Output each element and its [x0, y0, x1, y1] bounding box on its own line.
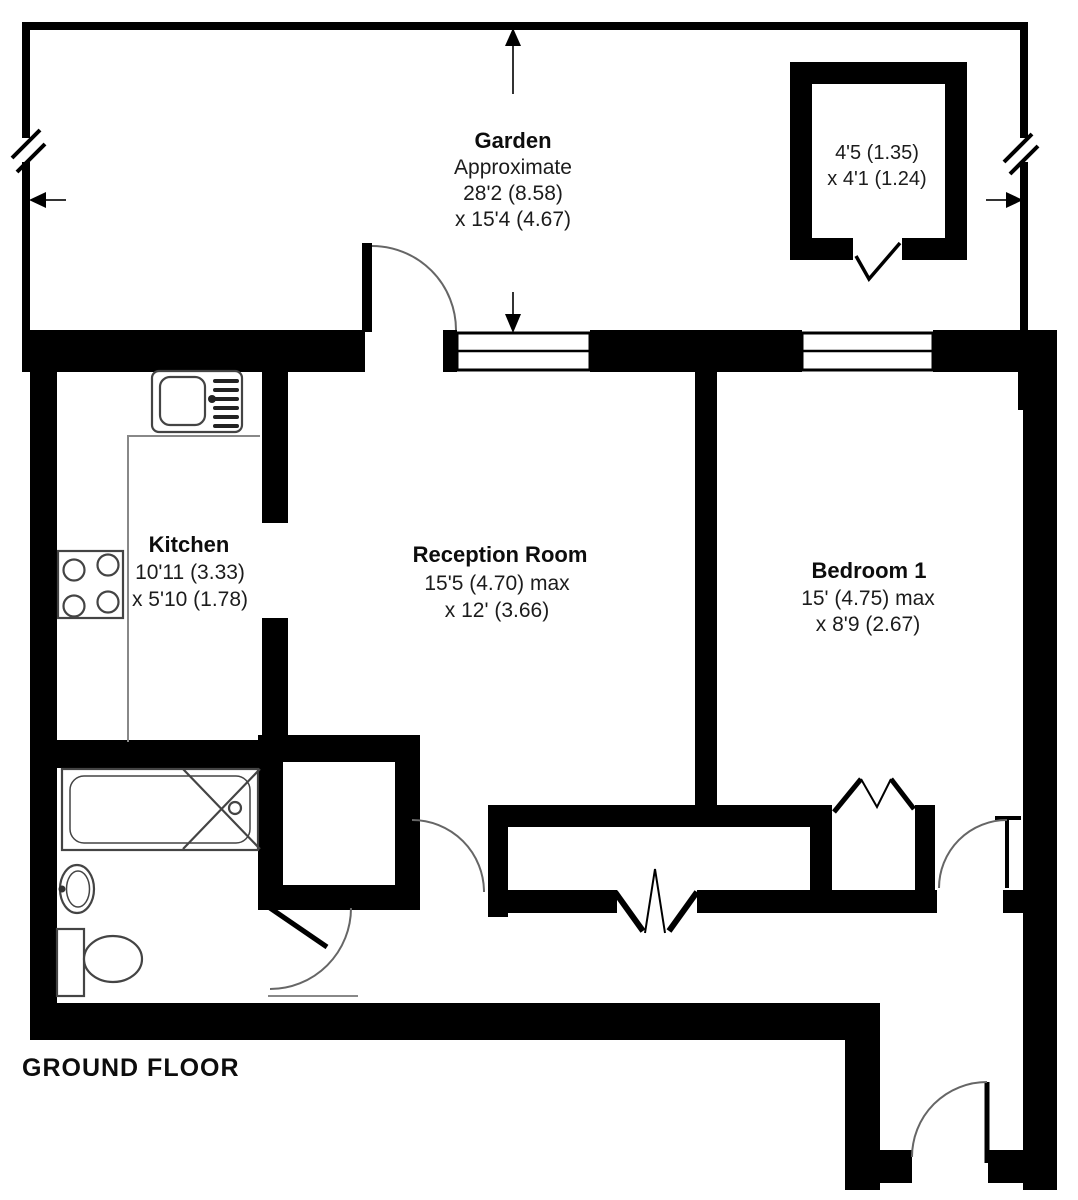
bifold-door-fold [861, 779, 891, 807]
bifold-door-panel [669, 892, 697, 931]
bedroom-closet-right-stub [915, 805, 935, 893]
arrow-down-head [505, 314, 521, 333]
hob-burner [98, 592, 119, 613]
kitchen-dim2: x 5'10 (1.78) [132, 588, 248, 611]
bedroom-1-dim2: x 8'9 (2.67) [816, 613, 920, 636]
hob-burner [64, 596, 85, 617]
bedroom-1-dim1: 15' (4.75) max [801, 587, 935, 610]
garden-wall-left [22, 22, 30, 332]
left-wall [30, 330, 57, 1040]
reception-door-swing-arc [412, 820, 484, 892]
bath-drain-icon [229, 802, 241, 814]
bifold-door-panel [891, 779, 914, 809]
top-wall-left-segment [22, 330, 365, 372]
garden-wall-right [1020, 22, 1028, 332]
hob-burner [64, 560, 85, 581]
hall-closet-right-wall [810, 805, 832, 893]
bathroom-door-leaf [270, 908, 327, 947]
arrow-left-head [29, 192, 46, 208]
hob-burner [98, 555, 119, 576]
bathroom-door-swing-arc [270, 908, 351, 989]
arrow-up-head [505, 28, 521, 46]
floorplan-canvas: Garden Approximate 28'2 (8.58) x 15'4 (4… [0, 0, 1078, 1200]
garden-dim2: x 15'4 (4.67) [455, 208, 571, 231]
hallway-top-wall-right [697, 890, 937, 913]
garden-note: Approximate [454, 156, 572, 179]
reception-bedroom-partition [695, 368, 717, 825]
bedroom-door-jamb [1003, 890, 1023, 913]
bathroom-fixtures [57, 769, 260, 996]
bathroom-top-wall [50, 740, 283, 768]
room-labels: Garden Approximate 28'2 (8.58) x 15'4 (4… [22, 128, 935, 1082]
basin-tap-icon [59, 886, 66, 893]
toilet-cistern [57, 929, 84, 996]
hob-icon [58, 551, 123, 618]
bifold-door-panel [834, 779, 861, 812]
kitchen-label: Kitchen [149, 532, 230, 557]
bottom-wall [30, 1003, 880, 1040]
floorplan-svg: Garden Approximate 28'2 (8.58) x 15'4 (4… [0, 0, 1078, 1200]
bathroom-right-wall [258, 740, 283, 908]
bedroom-1-label: Bedroom 1 [812, 558, 927, 583]
bathtub-icon [62, 769, 260, 850]
toilet-icon [57, 929, 142, 996]
entrance-door-swing-arc [912, 1082, 987, 1157]
storage-closet-bottom-wall [258, 885, 420, 910]
right-wall [1023, 330, 1057, 1190]
right-wall-notch [1018, 372, 1042, 410]
bifold-door-panel [615, 892, 643, 931]
kitchen-divider-lower [262, 618, 288, 745]
storage-closet-right-wall [395, 735, 420, 910]
kitchen-divider-upper [262, 368, 288, 523]
reception-room-dim1: 15'5 (4.70) max [424, 572, 570, 595]
top-wall-middle-segment [590, 330, 802, 372]
garden-door-swing-arc [372, 246, 456, 330]
garden-label: Garden [474, 128, 551, 153]
entrance-bottom-wall-left [845, 1150, 912, 1183]
bifold-door-fold [645, 869, 665, 933]
wash-basin-icon [59, 865, 95, 913]
bedroom-closet-bifold-doors [834, 779, 914, 812]
garden-dim1: 28'2 (8.58) [463, 182, 563, 205]
shed-dim2: x 4'1 (1.24) [827, 168, 926, 190]
garden-wall-top [22, 22, 1028, 30]
toilet-bowl [84, 936, 142, 982]
reception-room-dim2: x 12' (3.66) [445, 599, 549, 622]
shed-dim1: 4'5 (1.35) [835, 142, 919, 164]
floor-title: GROUND FLOOR [22, 1054, 240, 1082]
hall-closet-top-wall [488, 805, 830, 827]
sink-basin-icon [160, 377, 205, 425]
top-wall-door-post [443, 330, 457, 372]
reception-room-label: Reception Room [413, 542, 588, 567]
hall-closet-bifold-doors [615, 869, 697, 933]
hallway-top-wall-left [488, 890, 617, 913]
kitchen-dim1: 10'11 (3.33) [135, 561, 245, 584]
garden-door-leaf [362, 243, 372, 332]
bedroom-door-swing-arc [939, 820, 1007, 888]
entrance-bottom-wall-right [988, 1150, 1057, 1183]
